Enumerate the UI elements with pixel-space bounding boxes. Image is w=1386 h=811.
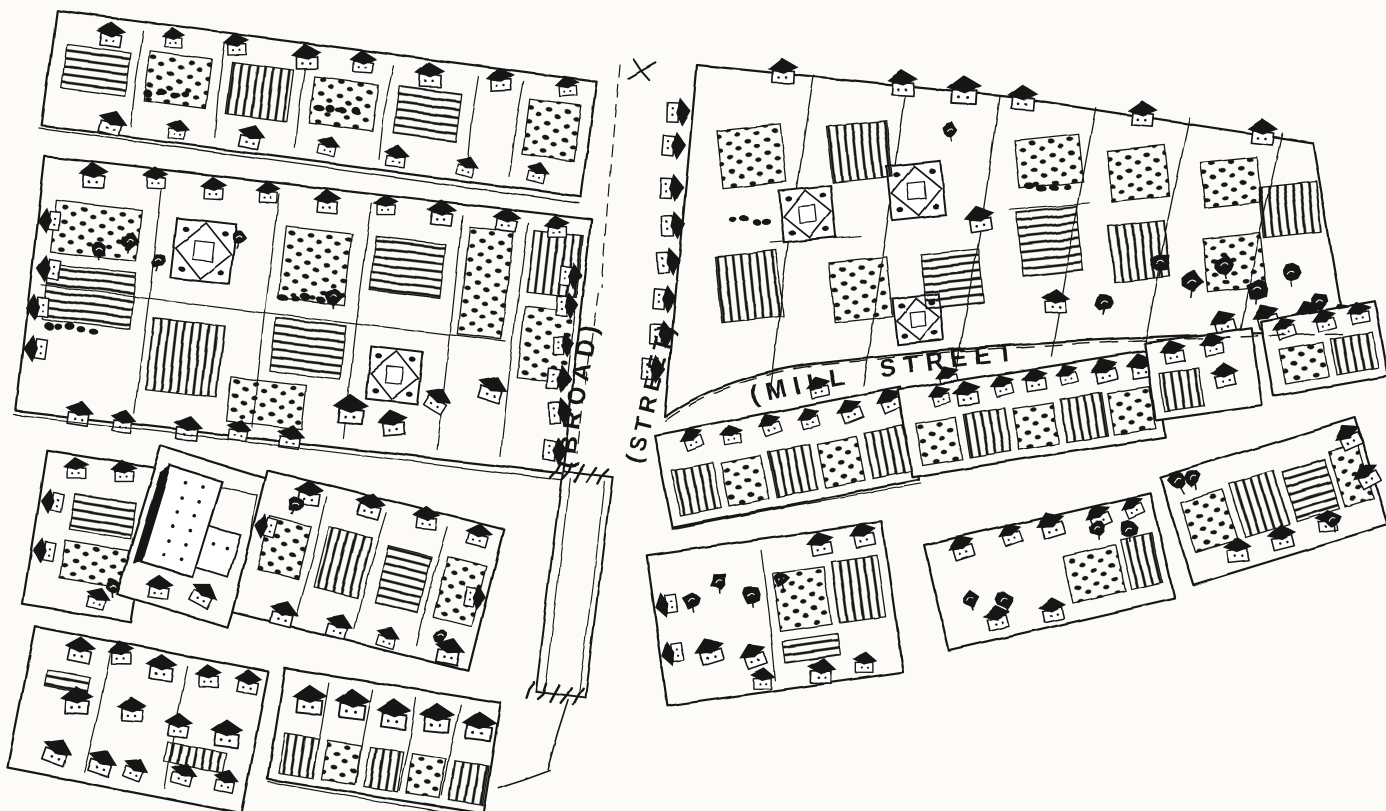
garden-plot xyxy=(526,230,583,297)
map-ink-shape xyxy=(1048,184,1057,190)
garden-plot xyxy=(1108,220,1170,282)
garden-plot xyxy=(720,455,768,506)
map-ink-shape xyxy=(1103,308,1104,315)
garden-lot xyxy=(1200,156,1261,208)
garden-plot xyxy=(269,317,345,379)
map-ink-shape xyxy=(714,250,783,322)
map-ink-shape xyxy=(1014,133,1083,187)
map-ink-shape xyxy=(1059,392,1107,442)
map-ink-shape xyxy=(772,566,832,631)
map-ink-shape xyxy=(169,217,235,283)
map-ink-shape xyxy=(1107,386,1155,434)
map-ink-shape xyxy=(394,427,397,430)
map-ink-shape xyxy=(830,554,884,622)
map-ink-shape xyxy=(393,85,461,141)
garden-plot xyxy=(1107,386,1155,434)
garden-plot xyxy=(671,462,721,515)
map-ink-shape xyxy=(1012,401,1058,449)
garden-plot xyxy=(393,85,461,141)
map-ink-shape xyxy=(320,739,360,784)
map-ink-shape xyxy=(363,746,403,791)
garden-lot xyxy=(1108,220,1170,282)
garden-plot xyxy=(320,739,360,784)
map-ink-shape xyxy=(920,248,983,308)
map-ink-shape xyxy=(752,218,760,224)
garden-plot xyxy=(145,317,225,397)
knot-garden xyxy=(365,346,423,404)
garden-plot xyxy=(1200,156,1261,208)
map-ink-shape xyxy=(1158,367,1203,410)
map-ink-shape xyxy=(1106,144,1169,202)
map-ink-shape xyxy=(369,236,445,298)
garden-plot xyxy=(767,443,817,496)
map-ink-shape xyxy=(718,586,720,593)
garden-plot xyxy=(915,417,961,465)
garden-plot xyxy=(308,76,377,130)
garden-plot xyxy=(1258,180,1321,238)
map-ink-shape xyxy=(738,215,747,221)
map-ink-shape xyxy=(826,120,892,182)
garden-plot xyxy=(828,256,892,322)
garden-plot xyxy=(1016,206,1082,276)
map-ink-shape xyxy=(1290,278,1291,286)
garden-lot xyxy=(716,123,786,187)
garden-plot xyxy=(278,226,352,305)
map-ink-shape xyxy=(278,732,318,777)
map-ink-shape xyxy=(1200,156,1261,208)
map-ink-shape xyxy=(716,123,786,187)
map-ink-shape xyxy=(224,61,292,121)
garden-lot xyxy=(920,248,983,308)
map-ink-shape xyxy=(521,98,580,160)
garden-plot xyxy=(1330,331,1378,374)
map-ink-shape xyxy=(1258,180,1321,238)
knot-garden xyxy=(886,160,945,219)
map-ink-shape xyxy=(448,759,488,804)
garden-plot xyxy=(448,759,488,804)
garden-plot xyxy=(60,43,129,95)
garden-plot xyxy=(143,50,211,108)
map-ink-shape xyxy=(145,317,225,397)
map-ink-shape xyxy=(1016,206,1082,276)
garden-plot xyxy=(278,732,318,777)
garden-plot xyxy=(920,248,983,308)
map-ink-shape xyxy=(60,43,129,95)
map-ink-shape xyxy=(365,346,423,404)
map-ink-shape xyxy=(760,217,770,224)
garden-plot xyxy=(224,61,292,121)
garden-plot xyxy=(1158,367,1203,410)
knot-garden xyxy=(778,185,835,242)
garden-lot xyxy=(1014,133,1083,187)
map-ink-shape xyxy=(387,428,390,431)
town-map: (BROAD) (STREET) (MILL STREET) xyxy=(0,0,1386,811)
garden-plot xyxy=(816,436,864,487)
map-ink-shape xyxy=(308,76,377,130)
garden-plot xyxy=(830,554,884,622)
garden-lot xyxy=(828,256,892,322)
garden-plot xyxy=(826,120,892,182)
garden-plot xyxy=(369,236,445,298)
map-ink-shape xyxy=(915,417,961,465)
garden-plot xyxy=(405,753,445,798)
garden-lot xyxy=(1258,180,1321,238)
map-ink-shape xyxy=(526,230,583,297)
garden-plot xyxy=(716,123,786,187)
map-ink-shape xyxy=(962,407,1010,457)
map-ink-shape xyxy=(1024,182,1035,189)
map-ink-shape xyxy=(405,753,445,798)
garden-plot xyxy=(714,250,783,322)
map-ink-shape xyxy=(886,160,945,219)
garden-plot xyxy=(1014,133,1083,187)
garden-plot xyxy=(363,746,403,791)
map-ink-shape xyxy=(691,604,692,611)
knot-garden xyxy=(169,217,235,283)
map-ink-shape xyxy=(1255,295,1256,304)
map-ink-shape xyxy=(143,50,211,108)
garden-plot xyxy=(772,566,832,631)
map-ink-shape xyxy=(728,216,736,221)
map-ink-shape xyxy=(828,256,892,322)
map-drawing: (BROAD) (STREET) (MILL STREET) xyxy=(0,0,1386,811)
map-ink-shape xyxy=(1063,183,1071,189)
garden-lot xyxy=(826,120,892,182)
garden-plot xyxy=(1059,392,1107,442)
garden-lot xyxy=(1016,206,1082,276)
map-ink-shape xyxy=(1036,185,1046,192)
garden-plot xyxy=(1279,342,1328,383)
garden-plot xyxy=(962,407,1010,457)
map-ink-shape xyxy=(778,185,835,242)
garden-lot xyxy=(1106,144,1169,202)
garden-lot xyxy=(714,250,783,322)
map-page: (BROAD) (STREET) (MILL STREET) xyxy=(0,0,1386,811)
garden-plot xyxy=(521,98,580,160)
map-ink-shape xyxy=(278,226,352,305)
map-ink-shape xyxy=(269,317,345,379)
garden-plot xyxy=(1106,144,1169,202)
garden-plot xyxy=(1012,401,1058,449)
map-ink-shape xyxy=(1108,220,1170,282)
